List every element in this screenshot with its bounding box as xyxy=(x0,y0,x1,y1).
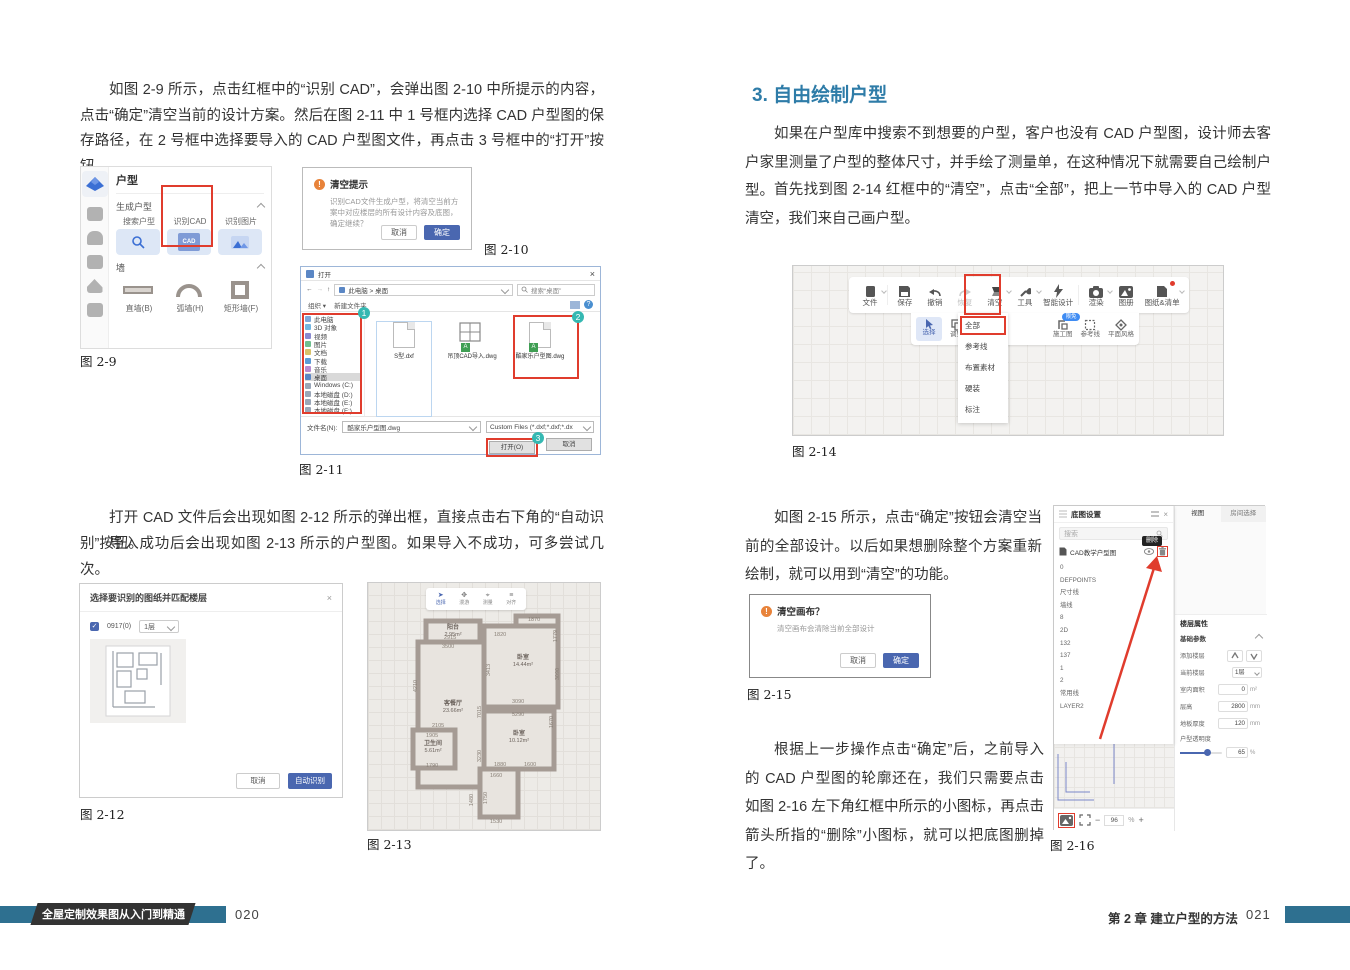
dim-label: 1660 xyxy=(490,773,502,779)
right-paragraph-3: 如图 2-15 所示，点击“确定”按钮会清空当前的全部设计。以后如果想删除整个方… xyxy=(745,504,1042,590)
cancel-button[interactable]: 取消 xyxy=(840,653,876,668)
chevron-up-icon[interactable] xyxy=(257,263,265,271)
dim-label: 1779 xyxy=(553,630,559,642)
list-icon[interactable] xyxy=(1151,510,1159,518)
percent-label: % xyxy=(1128,817,1134,824)
menu-item-reference-lines[interactable]: 参考线 xyxy=(958,336,1008,357)
caption-fig-2-16: 图 2-16 xyxy=(1050,835,1095,854)
free-badge: 限免 xyxy=(1062,313,1079,321)
dim-label: 1750 xyxy=(483,792,489,804)
fig-2-12-dialog: 选择要识别的图纸并匹配楼层 × ✓ 0917(0) 1层 xyxy=(79,583,343,798)
dim-label: 2105 xyxy=(432,723,444,729)
book-spread: 如图 2-9 所示，点击红框中的“识别 CAD”，会弹出图 2-10 中所提示的… xyxy=(0,0,1350,970)
dim-label: 3090 xyxy=(555,668,561,680)
rect-wall-icon xyxy=(231,281,249,299)
search-box[interactable]: 搜索“桌面” xyxy=(517,284,595,296)
tab-room-select[interactable]: 房间选择 xyxy=(1221,506,1267,522)
tile-label: 直墙(B) xyxy=(116,303,162,314)
dim-label: 1880 xyxy=(494,762,506,768)
forward-icon[interactable]: → xyxy=(317,286,324,293)
smart-design-button[interactable]: 智能设计 xyxy=(1040,283,1076,308)
floor-height-input[interactable]: 2800 xyxy=(1218,701,1248,712)
cancel-button[interactable]: 取消 xyxy=(381,225,417,240)
search-icon xyxy=(521,286,528,293)
select-tool[interactable]: 选择 xyxy=(916,317,942,341)
search-icon xyxy=(131,235,145,249)
construction-drawing-tool[interactable]: 施工图 限免 xyxy=(1053,319,1073,339)
room-bathroom: 卫生间5.61m² xyxy=(418,741,448,755)
dwg-grid-icon xyxy=(459,322,481,342)
room-bedroom-2: 卧室10.12m² xyxy=(502,731,536,745)
autocad-badge: A xyxy=(461,343,470,352)
fig-2-11-open-dialog: 打开 × ← → ↑ 此电脑 > 桌面 搜索“桌面” 组织 ▾ 新建文件夹 ? xyxy=(300,266,601,455)
close-icon[interactable]: × xyxy=(327,593,332,603)
organize-menu[interactable]: 组织 ▾ xyxy=(308,300,326,310)
right-paragraph-4: 根据上一步操作点击“确定”后，之前导入的 CAD 户型图的轮廓还在，我们只需要点… xyxy=(745,736,1044,879)
panel-title: 底图设置 xyxy=(1071,509,1147,520)
panel-title: 楼层属性 xyxy=(1180,619,1262,629)
dim-label: 5290 xyxy=(512,712,524,718)
tab-view[interactable]: 视图 xyxy=(1175,506,1221,522)
floor-properties-panel: 楼层属性 基础参数 添加楼层 当前楼层 1层 xyxy=(1175,614,1267,831)
tools-button[interactable]: 工具 xyxy=(1010,283,1040,308)
footer-book-title-banner: 全屋定制效果图从入门到精通 xyxy=(30,903,195,925)
caption-fig-2-9: 图 2-9 xyxy=(80,351,117,370)
fit-view-icon[interactable] xyxy=(1079,814,1091,826)
tile-search-floorplan[interactable]: 搜索户型 xyxy=(116,216,162,255)
auto-recognize-button[interactable]: 自动识别 xyxy=(288,773,332,789)
notification-dot xyxy=(1170,281,1175,286)
tile-recognize-image[interactable]: 识别图片 xyxy=(218,216,264,255)
app-sidebar xyxy=(81,167,109,348)
undo-button[interactable]: 撤销 xyxy=(920,283,950,308)
chevron-down-icon[interactable] xyxy=(469,423,477,431)
caption-fig-2-13: 图 2-13 xyxy=(367,834,412,853)
pc-icon xyxy=(339,287,345,293)
chevron-down-icon[interactable] xyxy=(501,285,509,293)
caption-fig-2-15: 图 2-15 xyxy=(747,684,792,703)
cancel-button[interactable]: 取消 xyxy=(546,438,592,451)
dim-label: 1790 xyxy=(426,763,438,769)
drawing-thumbnail[interactable] xyxy=(90,639,186,723)
dim-label: 3500 xyxy=(442,644,454,650)
slab-thickness-input[interactable]: 120 xyxy=(1218,718,1248,729)
clear-dropdown-menu: 全部 参考线 布置素材 硬装 标注 xyxy=(958,313,1008,423)
dim-label: 7015 xyxy=(477,706,483,718)
canvas-zoom-bar: − 96 % + xyxy=(1054,808,1174,831)
dim-label: 1870 xyxy=(528,617,540,623)
filename-input[interactable]: 酷家乐户型图.dwg xyxy=(342,421,481,433)
file-icon xyxy=(1059,547,1067,556)
view-icon[interactable] xyxy=(570,301,580,309)
app-logo-icon[interactable] xyxy=(82,171,108,197)
highlight-redbox-baseimage xyxy=(1058,813,1075,828)
help-icon[interactable]: ? xyxy=(584,300,593,309)
tile-arc-wall[interactable]: 弧墙(H) xyxy=(167,277,213,316)
sheet-label: 0917(0) xyxy=(107,623,131,630)
window-icon xyxy=(306,270,314,278)
dim-label: 4210 xyxy=(413,680,419,692)
slab-thickness-label: 地板厚度 xyxy=(1180,719,1205,728)
sofa-icon[interactable] xyxy=(87,255,103,269)
caption-fig-2-14: 图 2-14 xyxy=(792,441,837,460)
section-wall[interactable]: 墙 xyxy=(116,261,264,274)
checkbox-checked[interactable]: ✓ xyxy=(90,622,99,631)
unit-label: % xyxy=(1250,750,1262,756)
dim-label: 1480 xyxy=(469,794,475,806)
menu-item-annotations[interactable]: 标注 xyxy=(958,399,1008,420)
up-icon[interactable]: ↑ xyxy=(327,286,330,293)
dim-label: 1820 xyxy=(494,632,506,638)
opacity-label: 户型透明度 xyxy=(1180,734,1211,743)
drawings-list-button[interactable]: 图纸&清单 xyxy=(1141,283,1183,308)
caption-fig-2-10: 图 2-10 xyxy=(484,239,529,258)
section-label: 墙 xyxy=(116,261,125,274)
page-number-left: 020 xyxy=(235,907,260,922)
tile-label: 矩形墙(F) xyxy=(218,303,264,314)
breadcrumb[interactable]: 此电脑 > 桌面 xyxy=(334,284,513,296)
straight-wall-icon xyxy=(123,286,153,294)
reference-line-tool[interactable]: 参考线 xyxy=(1081,319,1101,339)
red-arrow-annotation xyxy=(1082,554,1172,744)
current-floor-select[interactable]: 1层 xyxy=(1232,667,1262,678)
section-heading: 3. 自由绘制户型 xyxy=(752,80,887,107)
highlight-redbox-sidebar xyxy=(302,313,362,414)
highlight-redbox-open: 3 打开(O) xyxy=(486,438,538,457)
dialog-title: 选择要识别的图纸并匹配楼层 xyxy=(90,591,207,604)
floor-height-label: 层高 xyxy=(1180,702,1192,711)
unit-label: mm xyxy=(1250,704,1262,710)
step-badge-3: 3 xyxy=(532,432,544,444)
tile-label: 弧墙(H) xyxy=(167,303,213,314)
cad-outline xyxy=(1054,744,1174,808)
dim-label: 3413 xyxy=(486,664,492,676)
confirm-button[interactable]: 确定 xyxy=(424,225,460,240)
warning-icon: ! xyxy=(314,179,325,190)
current-floor-label: 当前楼层 xyxy=(1180,668,1205,677)
opacity-slider[interactable] xyxy=(1180,752,1222,754)
chapter-title: 第 2 章 建立户型的方法 xyxy=(1108,908,1238,927)
add-floor-up-button[interactable] xyxy=(1227,650,1243,662)
dim-label: 1530 xyxy=(490,819,502,825)
menu-item-hard-decor[interactable]: 硬装 xyxy=(958,378,1008,399)
dim-label: 1600 xyxy=(524,762,536,768)
dim-label: 3230 xyxy=(477,750,483,762)
floorplan-sketch xyxy=(105,645,171,717)
person-icon[interactable] xyxy=(87,279,103,293)
dialog-body: 清空画布会清除当前全部设计 xyxy=(777,623,919,634)
render-button[interactable]: 渲染 xyxy=(1081,283,1111,308)
left-paragraph-1: 如图 2-9 所示，点击红框中的“识别 CAD”，会弹出图 2-10 中所提示的… xyxy=(80,78,604,180)
delete-tooltip: 删除 xyxy=(1142,536,1162,546)
step-badge-1: 1 xyxy=(358,307,370,319)
zoom-out-button[interactable]: − xyxy=(1095,815,1100,825)
zoom-in-button[interactable]: + xyxy=(1139,815,1144,825)
back-icon[interactable]: ← xyxy=(306,286,313,293)
base-image-icon[interactable] xyxy=(1060,815,1073,826)
indoor-area-label: 室内面积 xyxy=(1180,685,1205,694)
add-floor-label: 添加楼层 xyxy=(1180,651,1205,660)
cabinet-icon[interactable] xyxy=(87,303,103,317)
file-ceiling-cad-dwg[interactable]: A 吊顶CAD导入.dwg xyxy=(445,322,499,416)
plan-style-tool[interactable]: 平面风格 xyxy=(1108,319,1134,339)
fig-2-16-panel-screenshot: 视图 房间选择 楼层属性 基础参数 添加楼层 当前楼层 xyxy=(1053,505,1265,830)
footer-right-bar xyxy=(1285,906,1350,923)
filetype-select[interactable]: Custom Files (*.dxf;*.dxf;*.dx xyxy=(486,421,594,433)
left-paragraph-2b: 导入成功后会出现如图 2-13 所示的户型图。如果导入不成功，可多尝试几次。 xyxy=(80,532,604,583)
dialog-title: 清空画布？ xyxy=(777,604,825,618)
search-placeholder: 搜索“桌面” xyxy=(531,285,561,295)
book-title: 全屋定制效果图从入门到精通 xyxy=(42,906,185,922)
close-icon[interactable]: × xyxy=(590,269,595,279)
caption-fig-2-11: 图 2-11 xyxy=(299,459,344,478)
arc-wall-icon xyxy=(176,282,202,298)
highlight-redbox-clear xyxy=(964,274,1001,315)
filename-label: 文件名(N): xyxy=(307,422,337,432)
confirm-button[interactable]: 确定 xyxy=(883,653,919,668)
opacity-input[interactable]: 65 xyxy=(1226,747,1248,758)
close-icon[interactable]: × xyxy=(1163,510,1168,519)
chevron-down-icon[interactable] xyxy=(583,423,591,431)
fig-2-9-screenshot: 户型 生成户型 搜索户型 识别CAD CAD 识别图片 xyxy=(80,166,272,349)
canvas-area[interactable] xyxy=(1054,744,1174,808)
file-button[interactable]: 文件 xyxy=(855,283,885,308)
caption-fig-2-12: 图 2-12 xyxy=(80,804,125,823)
file-s-dxf[interactable]: S型.dxf xyxy=(377,322,431,416)
chevron-up-icon[interactable] xyxy=(1255,634,1263,642)
highlight-redbox-recognize-cad xyxy=(161,185,213,247)
open-button[interactable]: 打开(O) xyxy=(489,441,535,454)
section-label: 生成户型 xyxy=(116,200,152,213)
save-button[interactable]: 保存 xyxy=(890,283,920,308)
gallery-button[interactable]: 图册 xyxy=(1111,283,1141,308)
right-paragraph-2: 首先找到图 2-14 红框中的“清空”，点击“全部”，把上一节中导入的 CAD … xyxy=(745,176,1271,233)
room-bedroom-1: 卧室14.44m² xyxy=(506,655,540,669)
window-title: 打开 xyxy=(318,269,331,279)
unit-label: m² xyxy=(1250,687,1262,693)
highlight-redbox-all xyxy=(960,316,1006,335)
tile-label: 搜索户型 xyxy=(116,216,162,227)
add-floor-down-button[interactable] xyxy=(1246,650,1262,662)
dxf-file-icon xyxy=(393,322,415,348)
breadcrumb-path: 此电脑 > 桌面 xyxy=(348,285,388,295)
cancel-button[interactable]: 取消 xyxy=(236,773,280,789)
fig-2-13-floorplan: ➤选择 ✥漫游 ⌖测量 ≡对齐 阳台2.95m² 卧室14.44m² 客餐厅23… xyxy=(367,582,601,831)
tool-icon[interactable] xyxy=(87,207,103,221)
indoor-area-input[interactable]: 0 xyxy=(1218,684,1248,695)
dim-label: 2915 xyxy=(444,635,456,641)
tile-rect-wall[interactable]: 矩形墙(F) xyxy=(218,277,264,316)
fig-2-10-dialog: ! 清空提示 识别CAD文件生成户型，将清空当前方案中对应楼层的所有设计内容及底… xyxy=(302,167,472,250)
tile-label: 识别图片 xyxy=(218,216,264,227)
step-badge-2: 2 xyxy=(572,311,584,323)
lamp-icon[interactable] xyxy=(87,231,103,245)
menu-item-placed-materials[interactable]: 布置素材 xyxy=(958,357,1008,378)
tile-straight-wall[interactable]: 直墙(B) xyxy=(116,277,162,316)
panel-handle-icon xyxy=(1059,510,1067,518)
room-living: 客餐厅23.66m² xyxy=(434,701,472,715)
floor-select[interactable]: 1层 xyxy=(139,620,179,633)
main-toolbar: 文件 保存 撤销 恢复 清空 工具 xyxy=(849,277,1189,313)
zoom-value[interactable]: 96 xyxy=(1104,815,1124,826)
dim-label: 1905 xyxy=(426,733,438,739)
image-icon xyxy=(231,236,249,249)
dialog-title: 清空提示 xyxy=(330,177,368,191)
dim-label: 3090 xyxy=(512,699,524,705)
page-number-right: 021 xyxy=(1246,907,1271,922)
highlight-redbox-file: 2 xyxy=(513,315,579,379)
sub-toolbar: 选择 调整 施工图 限免 参考线 平面风格 xyxy=(911,313,1139,345)
fig-2-15-dialog: ! 清空画布？ 清空画布会清除当前全部设计 取消 确定 xyxy=(749,594,931,678)
section-label: 基础参数 xyxy=(1180,633,1206,643)
search-placeholder: 搜索 xyxy=(1064,529,1078,539)
unit-label: mm xyxy=(1250,721,1262,727)
fig-2-14-toolbar-screenshot: 文件 保存 撤销 恢复 清空 工具 xyxy=(792,265,1224,436)
dim-label: 1670 xyxy=(549,716,555,728)
warning-icon: ! xyxy=(761,606,772,617)
chevron-up-icon[interactable] xyxy=(257,202,265,210)
chevron-down-icon xyxy=(167,622,175,630)
menu-item-all[interactable]: 全部 xyxy=(958,315,1008,336)
right-tabs: 视图 房间选择 xyxy=(1175,506,1266,522)
